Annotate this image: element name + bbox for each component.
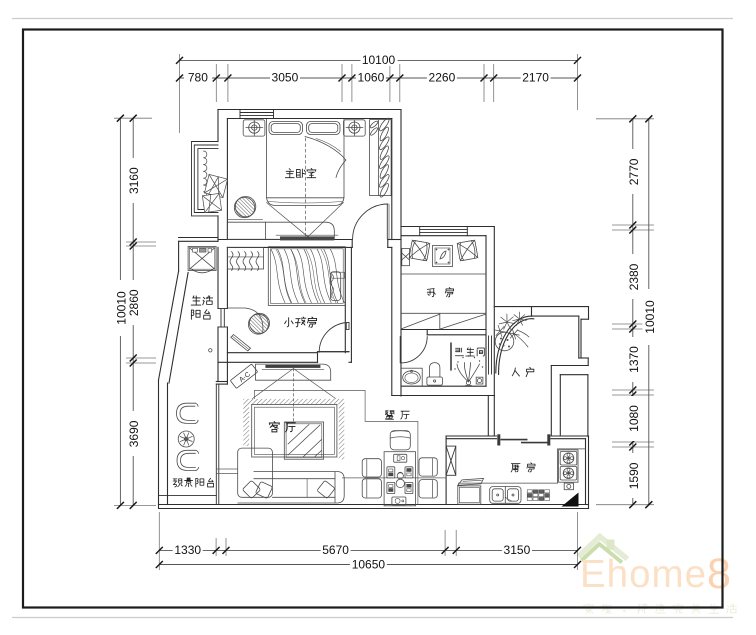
svg-text:2770: 2770 xyxy=(627,158,641,185)
svg-text:8: 8 xyxy=(707,550,731,598)
svg-text:780: 780 xyxy=(188,71,208,85)
svg-text:3150: 3150 xyxy=(504,543,531,557)
svg-text:1080: 1080 xyxy=(627,405,641,432)
svg-text:1370: 1370 xyxy=(627,346,641,373)
svg-text:5670: 5670 xyxy=(322,543,349,557)
svg-text:3690: 3690 xyxy=(127,420,141,447)
svg-text:3160: 3160 xyxy=(127,167,141,194)
svg-text:2860: 2860 xyxy=(127,289,141,316)
svg-text:10650: 10650 xyxy=(352,557,386,571)
svg-text:Ehome: Ehome xyxy=(580,553,707,596)
svg-text:1590: 1590 xyxy=(627,462,641,489)
svg-text:10100: 10100 xyxy=(362,53,396,67)
svg-text:10010: 10010 xyxy=(643,300,657,334)
svg-text:2380: 2380 xyxy=(627,263,641,290)
svg-text:1330: 1330 xyxy=(174,543,201,557)
svg-text:3050: 3050 xyxy=(272,71,299,85)
svg-text:2260: 2260 xyxy=(429,71,456,85)
svg-text:10010: 10010 xyxy=(114,291,128,325)
svg-text:1060: 1060 xyxy=(358,71,385,85)
svg-text:2170: 2170 xyxy=(522,71,549,85)
